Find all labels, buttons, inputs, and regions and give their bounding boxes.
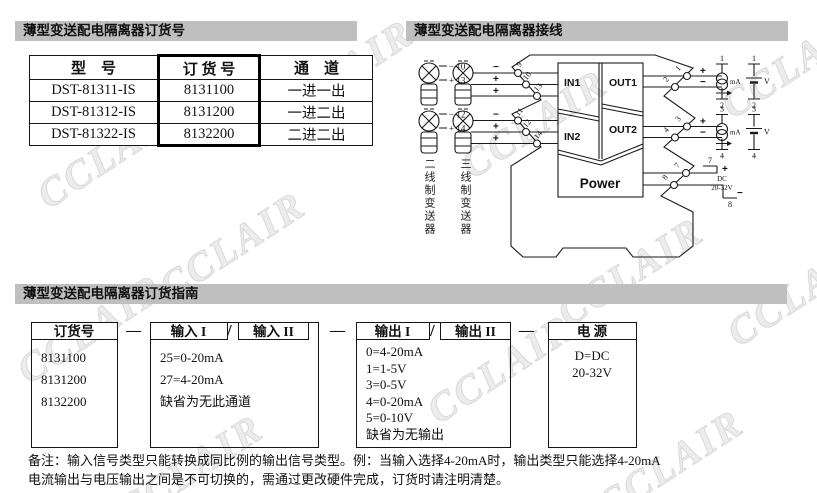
footnote-line1: 备注：输入信号类型只能转换成同比例的输出信号类型。例：当输入选择4-20mA时，… xyxy=(28,452,798,471)
guide-connector: — xyxy=(519,323,534,340)
ps-terminal-number: 8 xyxy=(728,200,732,209)
guide-value: 4=0-20mA xyxy=(366,394,444,411)
cell-channel: 一进二出 xyxy=(260,102,373,124)
terminal-number: 1 xyxy=(673,64,682,73)
col-header-model: 型 号 xyxy=(30,56,159,80)
minus-sign: − xyxy=(493,110,499,121)
load-terminal-number: 3 xyxy=(720,105,724,114)
v-unit-label: V xyxy=(764,77,770,86)
tx-stub-label: + 13 xyxy=(449,76,466,86)
guide-connector: — xyxy=(330,323,345,340)
section-title-wiring: 薄型变送配电隔离器接线 xyxy=(406,21,788,41)
two-wire-transmitter-label: 二线制变送器 xyxy=(421,158,437,238)
guide-value: 5=0-10V xyxy=(366,410,444,427)
minus-sign: − xyxy=(737,188,743,199)
terminal-number: 11 xyxy=(513,106,525,118)
dc-voltage-label: 20-32V xyxy=(711,184,732,192)
guide-value: 8131200 xyxy=(41,369,87,391)
load-terminal-number: 4 xyxy=(752,152,756,161)
load-terminal-number: 3 xyxy=(752,105,756,114)
terminal-number: 8 xyxy=(660,173,669,182)
two-wire-transmitter-icon xyxy=(419,109,447,153)
col-header-channel: 通 道 xyxy=(260,56,373,80)
out1-label: OUT1 xyxy=(609,77,637,89)
minus-sign: − xyxy=(700,128,706,139)
guide-value: 8132200 xyxy=(41,391,87,413)
footnote-line2: 电流输出与电压输出之间是不可切换的，需通过更改硬件完成，订货时请注明清楚。 xyxy=(28,471,798,490)
table-row: DST-81311-IS 8131100 一进一出 xyxy=(30,80,373,102)
guide-header-output1: 输出 I xyxy=(356,322,430,340)
ma-unit-label: mA xyxy=(730,78,741,86)
order-number-table: 型 号 订 货 号 通 道 DST-81311-IS 8131100 一进一出 … xyxy=(29,54,373,147)
load-terminal-number: 4 xyxy=(720,152,724,161)
cell-model: DST-81322-IS xyxy=(30,124,159,146)
minus-sign: − xyxy=(493,62,499,73)
plus-sign: + xyxy=(700,66,706,77)
guide-header-output2: 输出 II xyxy=(440,322,511,340)
guide-value: 缺省为无此通道 xyxy=(160,391,251,413)
in2-label: IN2 xyxy=(564,131,581,143)
minus-sign: − xyxy=(700,77,706,88)
cell-channel: 二进二出 xyxy=(260,124,373,146)
page: CCLAIR CCLAIR CCLAIR CCLAIR CCLAIR CCLAI… xyxy=(0,0,817,493)
terminal-number: 12 xyxy=(521,117,533,129)
terminal-number: 7 xyxy=(672,161,681,170)
load-terminal-number: 1 xyxy=(720,54,724,63)
tx-stub-label: − 10 xyxy=(449,62,466,72)
guide-header-input2: 输入 II xyxy=(238,322,309,340)
two-wire-transmitter-icon xyxy=(419,61,447,105)
power-label: Power xyxy=(580,176,621,191)
col-header-order-no: 订 货 号 xyxy=(159,56,260,80)
terminal-number: 3 xyxy=(673,114,682,123)
table-header-row: 型 号 订 货 号 通 道 xyxy=(30,56,373,80)
guide-value: 缺省为无输出 xyxy=(366,427,444,444)
guide-slash: / xyxy=(430,321,435,341)
guide-box-power: 电 源 D=DC 20-32V xyxy=(548,322,637,448)
guide-value: 20-32V xyxy=(549,364,635,381)
guide-slash: / xyxy=(227,321,232,341)
footnote: 备注：输入信号类型只能转换成同比例的输出信号类型。例：当输入选择4-20mA时，… xyxy=(28,452,798,489)
guide-value: 0=4-20mA xyxy=(366,344,444,361)
cell-order-no: 8131200 xyxy=(159,102,260,124)
cell-channel: 一进一出 xyxy=(260,80,373,102)
guide-value: 3=0-5V xyxy=(366,377,444,394)
plus-sign: + xyxy=(722,164,728,175)
guide-header-input1: 输入 I xyxy=(150,322,228,340)
ps-terminal-number: 7 xyxy=(708,156,712,165)
v-unit-label: V xyxy=(764,128,770,137)
guide-box-order-no: 订货号 8131100 8131200 8132200 xyxy=(31,322,118,448)
guide-header-order-no: 订货号 xyxy=(31,322,118,340)
plus-sign: + xyxy=(493,86,499,97)
dc-label: DC xyxy=(717,175,727,183)
plus-sign: + xyxy=(493,74,499,85)
three-wire-transmitter-label: 三线制变送器 xyxy=(457,158,473,238)
output-wires xyxy=(643,76,723,198)
table-row: DST-81322-IS 8132200 二进二出 xyxy=(30,124,373,146)
plus-sign: + xyxy=(493,134,499,145)
terminal-number: 9 xyxy=(514,60,523,69)
guide-value: 1=1-5V xyxy=(366,361,444,378)
ma-unit-label: mA xyxy=(730,129,741,137)
tx-stub-label: + 14 xyxy=(449,124,466,134)
guide-header-power: 电 源 xyxy=(548,322,637,340)
section-title-order-guide: 薄型变送配电隔离器订货指南 xyxy=(15,284,787,304)
load-terminal-number: 1 xyxy=(752,54,756,63)
plus-sign: + xyxy=(700,117,706,128)
tx-stub-label: − 12 xyxy=(449,110,465,120)
cell-order-no: 8132200 xyxy=(159,124,260,146)
guide-value: 8131100 xyxy=(41,347,87,369)
guide-connector: — xyxy=(126,323,141,340)
v-load-symbol xyxy=(746,115,762,150)
plus-sign: + xyxy=(493,122,499,133)
cell-model: DST-81311-IS xyxy=(30,80,159,102)
section-title-order-number: 薄型变送配电隔离器订货号 xyxy=(15,21,357,41)
cell-model: DST-81312-IS xyxy=(30,102,159,124)
out2-label: OUT2 xyxy=(609,124,637,136)
cell-order-no: 8131100 xyxy=(159,80,260,102)
guide-value: D=DC xyxy=(549,347,635,364)
table-row: DST-81312-IS 8131200 一进二出 xyxy=(30,102,373,124)
guide-value: 27=4-20mA xyxy=(160,369,251,391)
input-wires xyxy=(471,73,558,144)
guide-value: 25=0-20mA xyxy=(160,347,251,369)
in1-label: IN1 xyxy=(564,77,581,89)
v-load-symbol xyxy=(746,64,762,99)
guide-box-input: 输入 I 输入 II 25=0-20mA 27=4-20mA 缺省为无此通道 xyxy=(150,322,319,448)
